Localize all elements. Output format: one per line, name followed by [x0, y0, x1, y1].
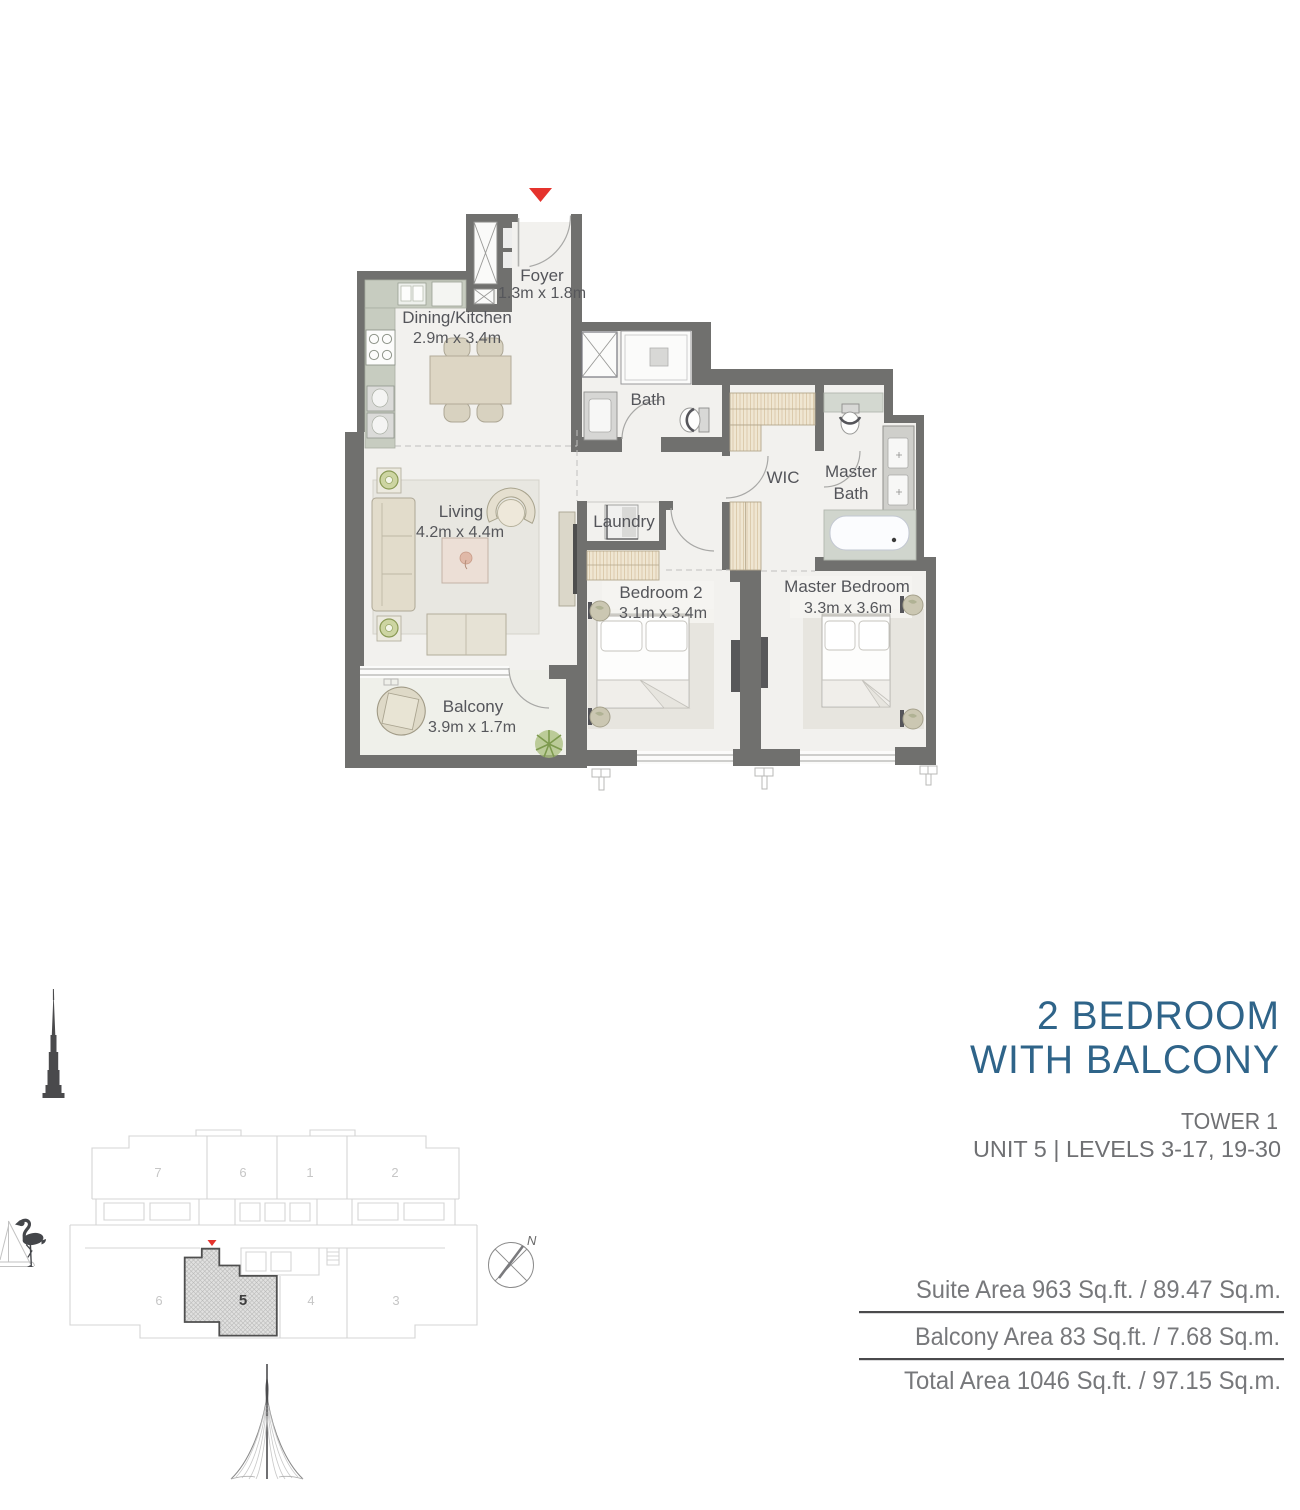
svg-text:Balcony: Balcony — [443, 697, 504, 716]
svg-text:1: 1 — [306, 1165, 313, 1180]
svg-text:Bath: Bath — [631, 390, 666, 409]
svg-text:3.9m x 1.7m: 3.9m x 1.7m — [428, 719, 516, 736]
svg-text:Dining/Kitchen: Dining/Kitchen — [402, 308, 512, 327]
svg-text:5: 5 — [239, 1292, 247, 1309]
svg-text:2.9m x 3.4m: 2.9m x 3.4m — [413, 330, 501, 347]
svg-text:WITH BALCONY: WITH BALCONY — [970, 1038, 1280, 1082]
svg-text:1.3m x 1.8m: 1.3m x 1.8m — [498, 285, 586, 302]
svg-text:Balcony Area 83 Sq.ft. / 7.68: Balcony Area 83 Sq.ft. / 7.68 Sq.m. — [915, 1323, 1280, 1351]
svg-text:3: 3 — [392, 1293, 399, 1308]
svg-text:Laundry: Laundry — [593, 512, 655, 531]
svg-text:Suite Area 963 Sq.ft. / 89.47: Suite Area 963 Sq.ft. / 89.47 Sq.m. — [916, 1276, 1281, 1304]
svg-text:2: 2 — [391, 1165, 398, 1180]
svg-text:7: 7 — [154, 1165, 161, 1180]
svg-text:WIC: WIC — [766, 468, 799, 487]
svg-text:N: N — [527, 1233, 537, 1248]
svg-text:Bath: Bath — [834, 484, 869, 503]
svg-text:6: 6 — [239, 1165, 246, 1180]
svg-text:4.2m x 4.4m: 4.2m x 4.4m — [416, 524, 504, 541]
svg-text:Living: Living — [439, 502, 483, 521]
svg-text:2 BEDROOM: 2 BEDROOM — [1037, 994, 1280, 1038]
svg-text:Bedroom 2: Bedroom 2 — [619, 583, 702, 602]
svg-text:4: 4 — [307, 1293, 314, 1308]
svg-text:Total Area 1046 Sq.ft. / 97.15: Total Area 1046 Sq.ft. / 97.15 Sq.m. — [904, 1367, 1281, 1395]
svg-text:UNIT 5 | LEVELS 3-17, 19-30: UNIT 5 | LEVELS 3-17, 19-30 — [973, 1136, 1281, 1162]
svg-text:Master Bedroom: Master Bedroom — [784, 577, 910, 596]
svg-text:3.3m x 3.6m: 3.3m x 3.6m — [804, 600, 892, 617]
svg-text:3.1m x 3.4m: 3.1m x 3.4m — [619, 605, 707, 622]
svg-text:Master: Master — [825, 462, 877, 481]
svg-text:Foyer: Foyer — [520, 266, 564, 285]
svg-text:TOWER 1: TOWER 1 — [1181, 1108, 1278, 1134]
svg-text:6: 6 — [155, 1293, 162, 1308]
